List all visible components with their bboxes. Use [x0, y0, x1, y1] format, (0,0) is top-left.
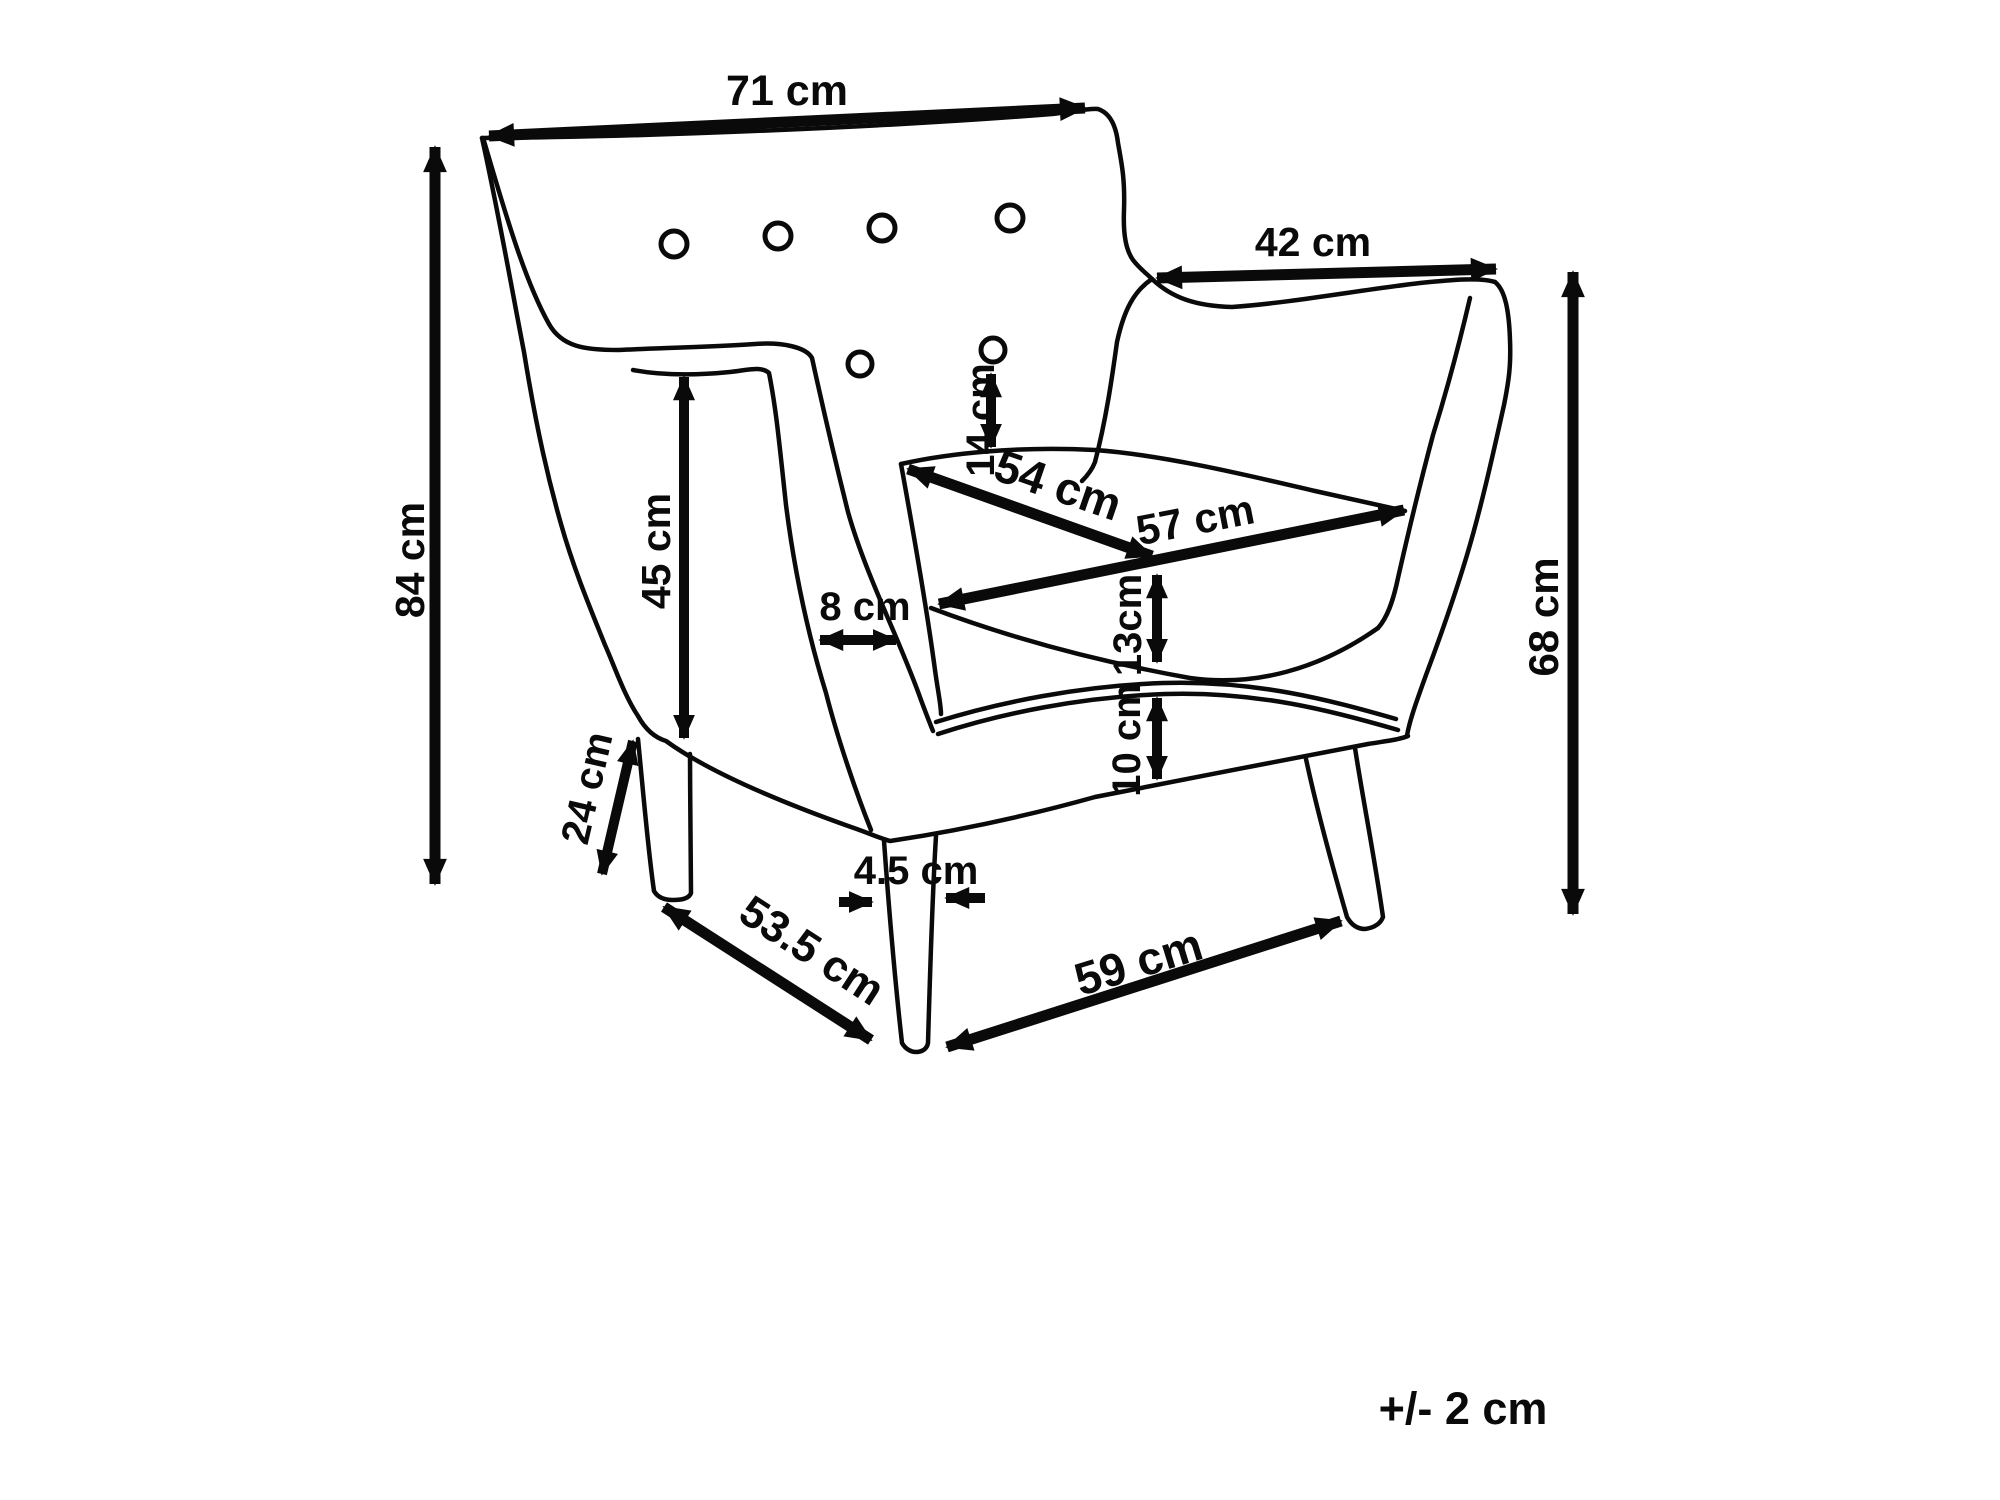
svg-text:10 cm: 10 cm — [1105, 683, 1149, 796]
svg-text:42 cm: 42 cm — [1255, 219, 1371, 265]
svg-text:13cm: 13cm — [1106, 574, 1150, 676]
svg-text:71 cm: 71 cm — [726, 67, 848, 115]
svg-text:14 cm: 14 cm — [959, 363, 1003, 476]
svg-text:68 cm: 68 cm — [1520, 557, 1567, 676]
svg-text:84 cm: 84 cm — [387, 502, 433, 618]
svg-text:8 cm: 8 cm — [819, 585, 910, 629]
svg-text:4.5 cm: 4.5 cm — [854, 849, 979, 893]
svg-text:+/- 2 cm: +/- 2 cm — [1379, 1383, 1548, 1434]
svg-text:45 cm: 45 cm — [633, 493, 679, 609]
